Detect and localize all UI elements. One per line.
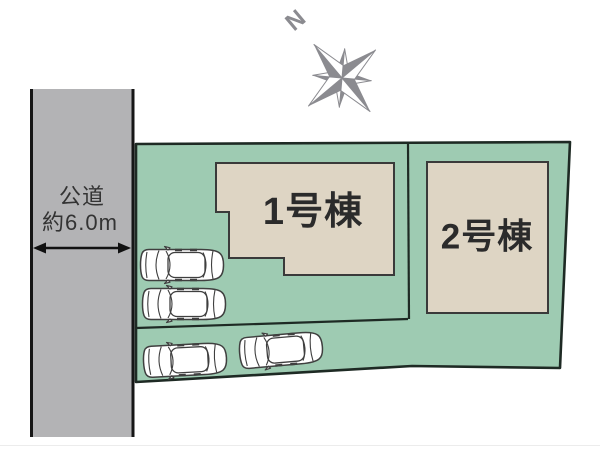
plot-divider-line bbox=[408, 144, 409, 319]
building-1-label: 1号棟 bbox=[263, 193, 363, 231]
road-strip bbox=[31, 89, 134, 437]
page-bottom-hairline bbox=[0, 445, 600, 446]
site-plan: N 公道 約6.0m 1号棟 2号棟 bbox=[0, 0, 600, 450]
road-name-label: 公道 bbox=[59, 186, 105, 208]
building-2-label: 2号棟 bbox=[441, 220, 533, 255]
car-icon-2 bbox=[143, 286, 226, 323]
road-width-label: 約6.0m bbox=[42, 212, 118, 234]
car-icon-1 bbox=[141, 247, 224, 284]
